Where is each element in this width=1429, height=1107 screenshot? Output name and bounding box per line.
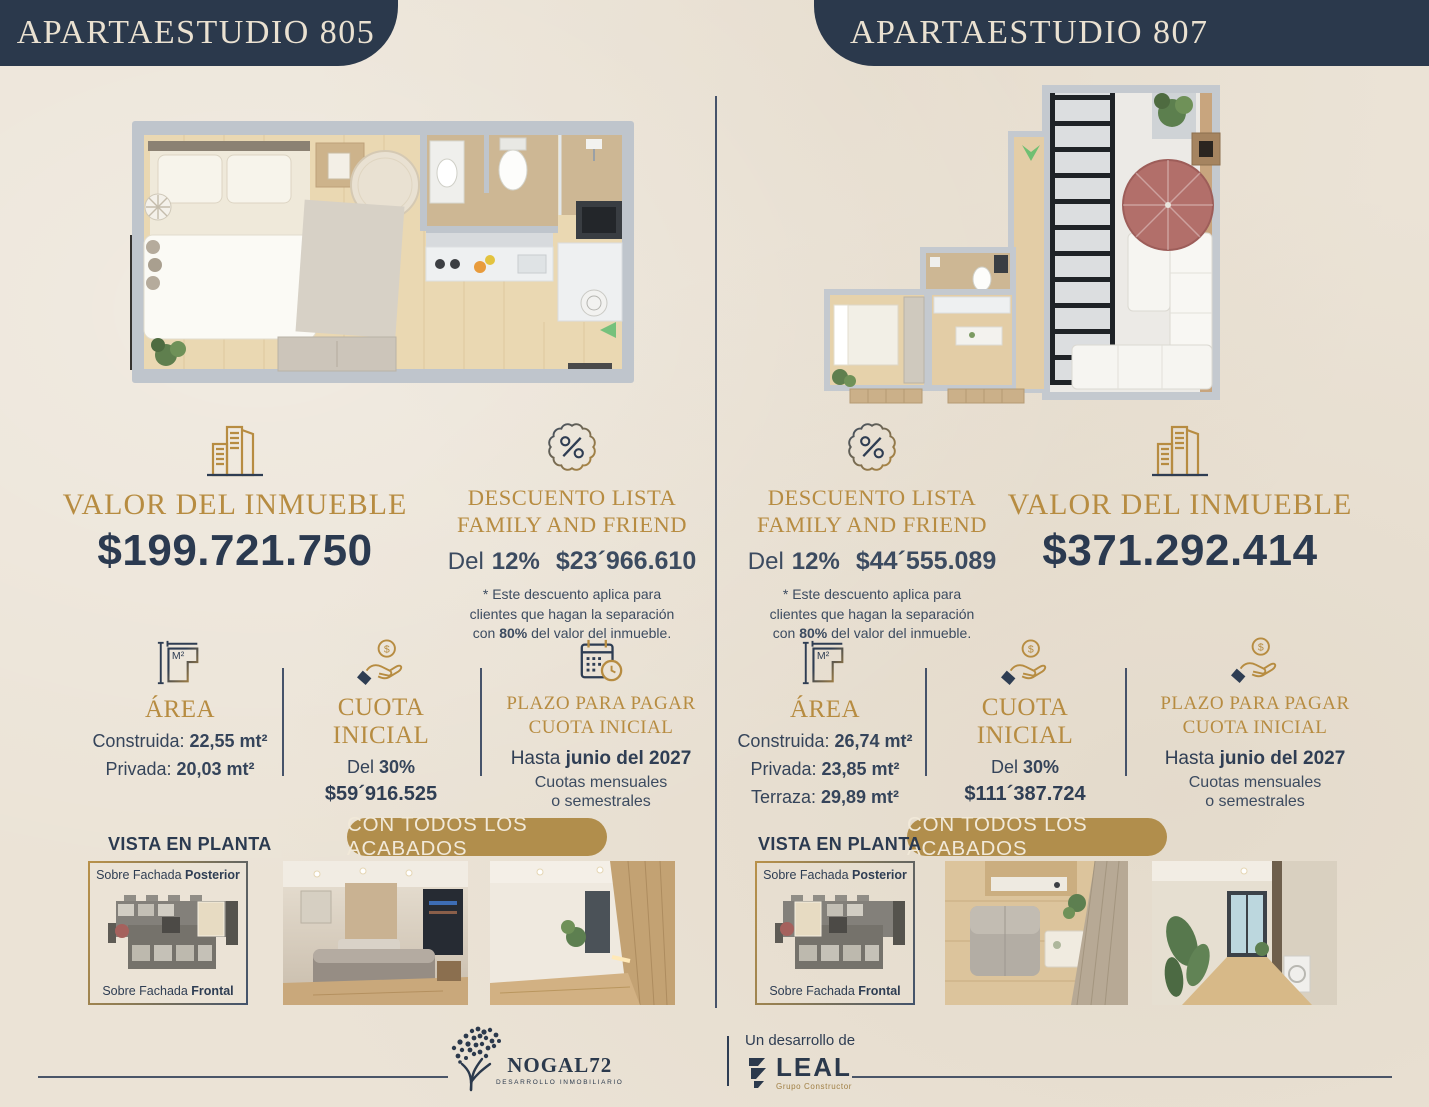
nogal72-logo: NOGAL72 DESARROLLO INMOBILIARIO [446, 1026, 623, 1092]
valor-block-807: VALOR DEL INMUEBLE $371.292.414 [1005, 424, 1355, 576]
plazo-sub2: o semestrales [490, 793, 712, 811]
plazo-date-row: Hasta junio del 2027 [490, 748, 712, 770]
percent-badge-icon [843, 418, 901, 476]
plazo-block-805: PLAZO PARA PAGAR CUOTA INICIAL Hasta jun… [490, 636, 712, 811]
plazo-block-807: $ PLAZO PARA PAGAR CUOTA INICIAL Hasta j… [1135, 636, 1375, 811]
cuota-block-807: $ CUOTA INICIAL Del30% $111´387.724 [935, 638, 1115, 806]
discount-block-807: DESCUENTO LISTA FAMILY AND FRIEND Del12%… [737, 418, 1007, 644]
valor-price: $371.292.414 [1005, 526, 1355, 576]
cuota-amount: $111´387.724 [935, 783, 1115, 806]
header-banner-805: APARTAESTUDIO 805 [0, 0, 398, 66]
column-divider [282, 668, 284, 776]
mini-floorplate-805 [98, 887, 238, 979]
footer-rule-left [38, 1076, 448, 1078]
plazo-title-line1: PLAZO PARA PAGAR [1135, 692, 1375, 716]
photo-807-hallway [1152, 861, 1337, 1005]
discount-amount-row: Del12%$23´966.610 [437, 547, 707, 576]
discount-block-805: DESCUENTO LISTA FAMILY AND FRIEND Del12%… [437, 418, 707, 644]
plazo-sub2: o semestrales [1135, 793, 1375, 811]
area-block-805: M² ÁREA Construida:22,55 mt² Privada:20,… [78, 638, 282, 780]
calendar-clock-icon [577, 636, 625, 684]
leal-logo: Un desarrollo de LEAL Grupo Constructor [745, 1032, 855, 1091]
vista-title-807: VISTA EN PLANTA [758, 834, 922, 855]
fachada-posterior-label: Sobre Fachada Posterior [96, 868, 240, 882]
photo-805-bedroom [283, 861, 468, 1005]
unit-title-805: APARTAESTUDIO 805 [17, 14, 376, 52]
flyer-canvas: APARTAESTUDIO 805 APARTAESTUDIO 807 [0, 0, 1429, 1107]
plazo-title-line1: PLAZO PARA PAGAR [490, 692, 712, 716]
header-banner-807: APARTAESTUDIO 807 [814, 0, 1429, 66]
column-divider [480, 668, 482, 776]
acabados-badge-805: CON TODOS LOS ACABADOS [347, 818, 607, 856]
nogal72-wordmark: NOGAL72 DESARROLLO INMOBILIARIO [496, 1053, 623, 1086]
percent-badge-icon [543, 418, 601, 476]
valor-title: VALOR DEL INMUEBLE [1005, 488, 1355, 522]
mini-floorplate-807 [765, 887, 905, 979]
plazo-date-row: Hasta junio del 2027 [1135, 748, 1375, 770]
svg-text:M²: M² [817, 650, 830, 662]
cuota-percent-row: Del30% [292, 757, 470, 778]
svg-text:$: $ [384, 643, 390, 655]
leal-mark-icon [745, 1057, 769, 1089]
column-divider [925, 668, 927, 776]
photo-807-living [945, 861, 1128, 1005]
un-desarrollo-de-label: Un desarrollo de [745, 1032, 855, 1049]
valor-block-805: VALOR DEL INMUEBLE $199.721.750 [60, 424, 410, 576]
area-row: Construida:22,55 mt² [78, 731, 282, 752]
valor-price: $199.721.750 [60, 526, 410, 576]
vista-box-807: Sobre Fachada Posterior Sobre Fachada Fr… [755, 861, 915, 1005]
nogal72-name: NOGAL72 [496, 1053, 623, 1078]
area-row: Privada:23,85 mt² [725, 759, 925, 780]
cuota-title: CUOTA INICIAL [292, 694, 470, 750]
hand-coin-icon: $ [1001, 638, 1049, 686]
plazo-title-line2: CUOTA INICIAL [490, 716, 712, 740]
discount-note: * Este descuento aplica para clientes qu… [737, 585, 1007, 644]
unit-title-807: APARTAESTUDIO 807 [850, 14, 1209, 52]
valor-title: VALOR DEL INMUEBLE [60, 488, 410, 522]
discount-title-line2: FAMILY AND FRIEND [437, 511, 707, 538]
fachada-frontal-label: Sobre Fachada Frontal [102, 984, 233, 998]
fachada-frontal-label: Sobre Fachada Frontal [769, 984, 900, 998]
svg-text:M²: M² [172, 650, 185, 662]
nogal72-tagline: DESARROLLO INMOBILIARIO [496, 1079, 623, 1086]
plazo-title-line2: CUOTA INICIAL [1135, 716, 1375, 740]
cuota-block-805: $ CUOTA INICIAL Del30% $59´916.525 [292, 638, 470, 806]
fachada-posterior-label: Sobre Fachada Posterior [763, 868, 907, 882]
column-divider [1125, 668, 1127, 776]
svg-text:$: $ [1028, 643, 1034, 655]
plazo-sub1: Cuotas mensuales [1135, 774, 1375, 792]
cuota-percent-row: Del30% [935, 757, 1115, 778]
area-title: ÁREA [78, 696, 282, 724]
building-icon [203, 424, 267, 480]
discount-title-line2: FAMILY AND FRIEND [737, 511, 1007, 538]
area-m2-icon: M² [155, 638, 205, 688]
plazo-sub1: Cuotas mensuales [490, 774, 712, 792]
area-title: ÁREA [725, 696, 925, 724]
area-row: Terraza:29,89 mt² [725, 787, 925, 808]
discount-title-line1: DESCUENTO LISTA [437, 484, 707, 511]
discount-title-line1: DESCUENTO LISTA [737, 484, 1007, 511]
leal-tagline: Grupo Constructor [776, 1082, 852, 1091]
floorplan-805-image [128, 117, 638, 389]
discount-note: * Este descuento aplica para clientes qu… [437, 585, 707, 644]
area-m2-icon: M² [800, 638, 850, 688]
building-icon [1148, 424, 1212, 480]
footer-rule-right [852, 1076, 1392, 1078]
area-block-807: M² ÁREA Construida:26,74 mt² Privada:23,… [725, 638, 925, 808]
area-row: Construida:26,74 mt² [725, 731, 925, 752]
vista-box-805: Sobre Fachada Posterior Sobre Fachada Fr… [88, 861, 248, 1005]
vista-title-805: VISTA EN PLANTA [108, 834, 272, 855]
footer-divider [727, 1036, 729, 1086]
discount-amount-row: Del12%$44´555.089 [737, 547, 1007, 576]
photo-805-kitchen [490, 861, 675, 1005]
cuota-title: CUOTA INICIAL [935, 694, 1115, 750]
center-divider [715, 96, 717, 1008]
leal-name: LEAL [776, 1054, 852, 1080]
area-row: Privada:20,03 mt² [78, 759, 282, 780]
svg-text:$: $ [1258, 641, 1264, 653]
hand-coin-icon: $ [1231, 636, 1279, 684]
cuota-amount: $59´916.525 [292, 783, 470, 806]
floorplan-807-image [822, 83, 1222, 405]
hand-coin-icon: $ [357, 638, 405, 686]
acabados-badge-807: CON TODOS LOS ACABADOS [907, 818, 1167, 856]
